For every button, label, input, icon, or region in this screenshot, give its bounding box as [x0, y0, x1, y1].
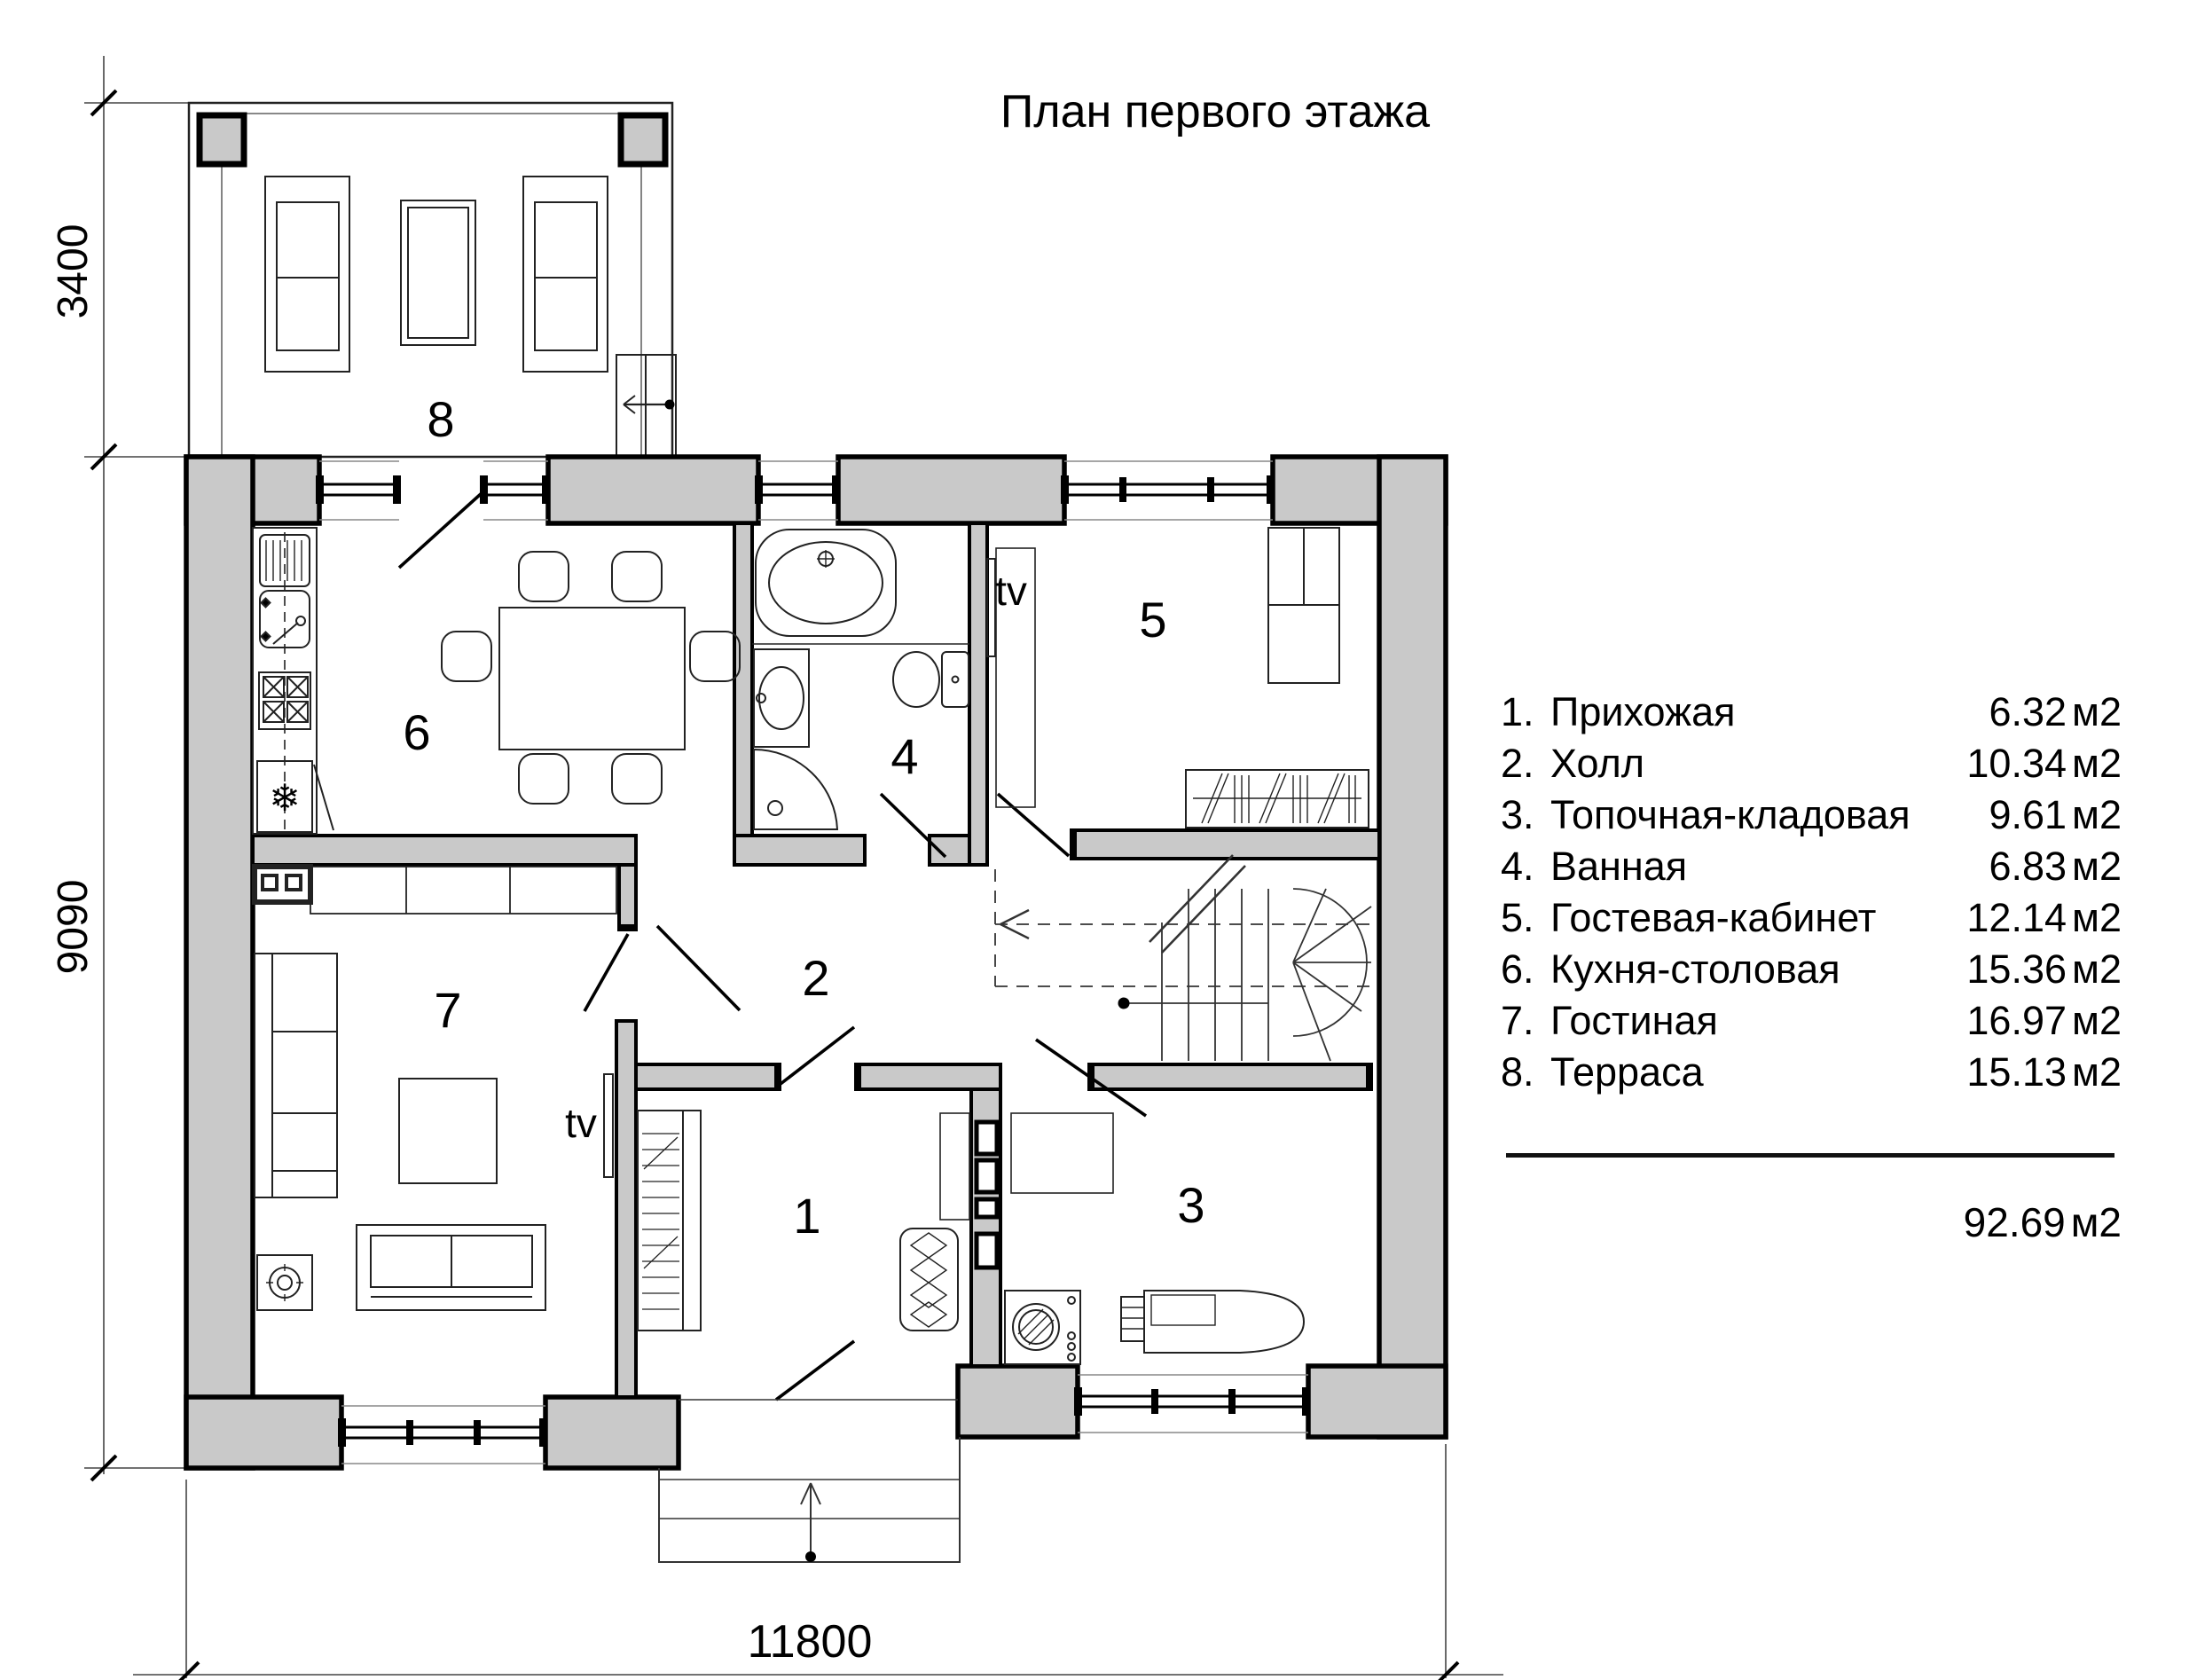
legend-row: 3. Топочная-кладовая 9.61 м2 [1501, 789, 2122, 841]
corner-sofa [255, 954, 337, 1197]
washing-machine [1005, 1291, 1080, 1364]
terrace-steps [616, 355, 676, 457]
legend-num: 2. [1501, 738, 1550, 789]
legend-row: 2. Холл 10.34 м2 [1501, 738, 2122, 789]
terrace-table [401, 200, 475, 345]
legend-unit: м2 [2072, 841, 2122, 892]
window [1074, 1375, 1310, 1433]
window [755, 461, 840, 520]
dining-table [442, 552, 740, 804]
room-label-8: 8 [427, 391, 454, 447]
legend-unit: м2 [2072, 687, 2122, 738]
tv-label-room7: tv [565, 1100, 597, 1146]
window [1061, 461, 1275, 520]
terrace-column [200, 115, 244, 164]
legend-unit: м2 [2072, 995, 2122, 1047]
legend-area: 15.13 [1966, 1047, 2067, 1098]
wardrobe [1268, 528, 1339, 683]
coffee-table [399, 1079, 497, 1183]
window [480, 461, 550, 520]
legend-num: 8. [1501, 1047, 1550, 1098]
legend-unit: м2 [2072, 789, 2122, 841]
hall-wardrobe [638, 1111, 701, 1331]
sideboard [310, 867, 616, 914]
legend-unit: м2 [2072, 738, 2122, 789]
legend-name: Прихожая [1550, 687, 1989, 738]
toilet [893, 652, 969, 707]
shower-tray [754, 750, 837, 829]
door-swings [399, 493, 1146, 1400]
pouf [900, 1229, 958, 1331]
legend-area: 9.61 [1989, 789, 2067, 841]
room-label-7: 7 [434, 982, 461, 1038]
legend-row: 6. Кухня-столовая 15.36 м2 [1501, 944, 2122, 995]
room-label-1: 1 [793, 1188, 820, 1244]
window [338, 1406, 547, 1464]
legend-row: 8. Терраса 15.13 м2 [1501, 1047, 2122, 1098]
legend-area: 6.32 [1989, 687, 2067, 738]
dim-terrace-depth: 3400 [50, 224, 97, 319]
closet-hanging [1186, 770, 1369, 828]
terrace-column [621, 115, 665, 164]
legend-area: 15.36 [1966, 944, 2067, 995]
total-area: 92.69 [1964, 1199, 2066, 1245]
legend-num: 3. [1501, 789, 1550, 841]
kitchen-furniture: ❄ [253, 528, 740, 834]
speaker-box [257, 1255, 312, 1310]
legend-unit: м2 [2072, 944, 2122, 995]
room-label-5: 5 [1139, 592, 1166, 648]
legend-name: Гостевая-кабинет [1550, 892, 1966, 944]
room-label-6: 6 [403, 704, 430, 760]
livingroom-furniture [255, 867, 616, 1310]
washbasin [754, 649, 809, 747]
tv-label-room5: tv [995, 568, 1027, 614]
legend-row: 7. Гостиная 16.97 м2 [1501, 995, 2122, 1047]
legend-name: Холл [1550, 738, 1966, 789]
legend-num: 1. [1501, 687, 1550, 738]
room3-furniture [1005, 1113, 1304, 1364]
legend-num: 6. [1501, 944, 1550, 995]
bathtub [756, 530, 896, 636]
legend-name: Топочная-кладовая [1550, 789, 1989, 841]
bathroom-fixtures [752, 530, 969, 829]
chimney [255, 867, 310, 902]
dim-house-width: 11800 [748, 1616, 873, 1668]
legend-area: 6.83 [1989, 841, 2067, 892]
boiler-unit [1121, 1291, 1304, 1353]
room-legend: 1. Прихожая 6.32 м2 2. Холл 10.34 м2 3. … [1501, 687, 2122, 1246]
legend-total: 92.69м2 [1501, 1198, 2122, 1246]
terrace-sofa [523, 177, 608, 372]
sofa [357, 1225, 545, 1310]
room-label-4: 4 [891, 728, 918, 784]
window [316, 461, 401, 520]
legend-name: Ванная [1550, 841, 1989, 892]
legend-num: 5. [1501, 892, 1550, 944]
legend-separator [1506, 1153, 2114, 1158]
tv-panel [604, 1074, 613, 1177]
legend-num: 4. [1501, 841, 1550, 892]
console-shelf [940, 1113, 969, 1220]
entry-porch [659, 1400, 960, 1562]
legend-row: 1. Прихожая 6.32 м2 [1501, 687, 2122, 738]
cabinet [1011, 1113, 1113, 1193]
legend-name: Гостиная [1550, 995, 1966, 1047]
legend-name: Терраса [1550, 1047, 1966, 1098]
legend-area: 16.97 [1966, 995, 2067, 1047]
legend-unit: м2 [2072, 892, 2122, 944]
legend-unit: м2 [2072, 1047, 2122, 1098]
legend-area: 10.34 [1966, 738, 2067, 789]
terrace-sofa [265, 177, 349, 372]
dim-house-depth: 9090 [50, 880, 97, 975]
total-unit: м2 [2071, 1199, 2122, 1245]
page-title: План первого этажа [976, 85, 1455, 138]
svg-text:❄: ❄ [269, 776, 300, 820]
legend-row: 5. Гостевая-кабинет 12.14 м2 [1501, 892, 2122, 944]
legend-num: 7. [1501, 995, 1550, 1047]
legend-area: 12.14 [1966, 892, 2067, 944]
room-label-2: 2 [802, 950, 829, 1006]
legend-name: Кухня-столовая [1550, 944, 1966, 995]
room5-furniture [987, 528, 1369, 828]
stairs [995, 855, 1371, 1061]
room-label-3: 3 [1177, 1177, 1204, 1233]
legend-row: 4. Ванная 6.83 м2 [1501, 841, 2122, 892]
